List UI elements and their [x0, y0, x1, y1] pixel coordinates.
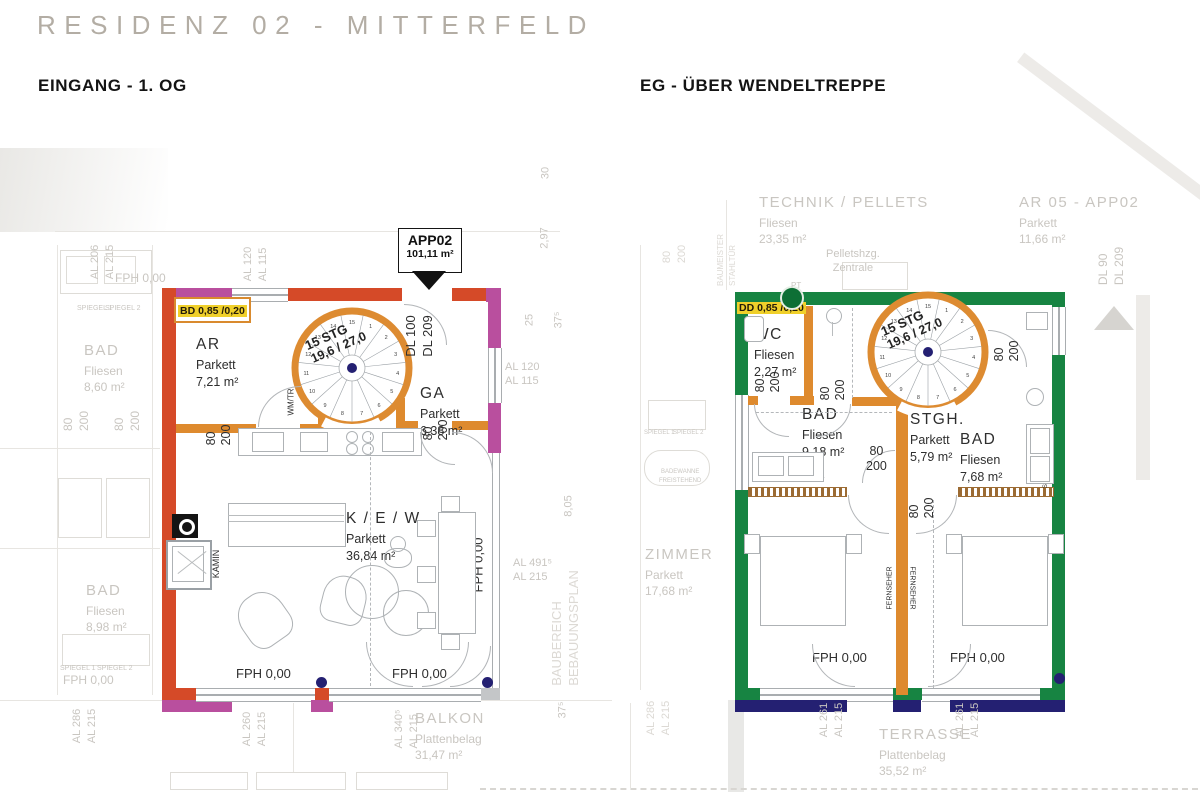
svg-text:11: 11: [879, 355, 885, 361]
glass-wall: [492, 453, 500, 688]
faded-line: [630, 703, 631, 788]
faded-annotation: BADFliesen8,98 m²: [86, 582, 127, 635]
room-name: AR: [196, 336, 238, 354]
dining-table: [438, 512, 476, 634]
column-dot: [1054, 673, 1065, 684]
faded-annotation: 8,05: [562, 495, 577, 516]
dining-chair: [441, 496, 460, 512]
faded-annotation: AL 286AL 215: [644, 701, 674, 735]
faded-annotation: SPIEGEL 1: [644, 430, 674, 436]
wall-segment: [1052, 355, 1065, 700]
sheet-title: RESIDENZ 02 - MITTERFELD: [37, 10, 595, 41]
room-floor: Parkett: [346, 531, 421, 548]
faded-roof-band: [1017, 52, 1200, 215]
room-label-stgh: STGH. Parkett 5,79 m²: [910, 411, 965, 466]
shower-head: [1026, 388, 1044, 406]
column-dot: [316, 677, 327, 688]
wall-segment: [315, 688, 329, 700]
faded-annotation: FPH 0,00: [63, 673, 114, 687]
faded-annotation: ZIMMERParkett17,68 m²: [645, 546, 713, 599]
faded-annotation: 80200: [111, 411, 143, 431]
svg-text:1: 1: [945, 308, 948, 314]
door-dimension-label: 80200: [753, 372, 783, 393]
island-line: [228, 515, 344, 516]
faded-annotation: DL 90DL 209: [1095, 247, 1127, 285]
window: [735, 395, 749, 490]
door-dimension-label: 80200: [907, 498, 937, 519]
faded-line: [152, 245, 153, 695]
faded-annotation: BAUMEISTERSTAHLTÜR: [715, 234, 739, 286]
dining-chair: [417, 566, 436, 583]
room-floor: Parkett: [910, 432, 965, 449]
heading-right-plan: EG - ÜBER WENDELTREPPE: [640, 76, 886, 96]
window: [488, 348, 502, 403]
wall-segment: [452, 288, 486, 301]
bed: [962, 536, 1048, 626]
faded-annotation: PT: [791, 281, 801, 290]
svg-text:6: 6: [377, 403, 380, 409]
svg-text:3: 3: [970, 336, 973, 342]
window: [196, 688, 315, 702]
nightstand: [1048, 534, 1064, 554]
door-arc: [404, 304, 447, 345]
wall-segment: [481, 688, 500, 700]
wall-segment: [488, 302, 501, 348]
svg-text:10: 10: [885, 373, 891, 379]
svg-text:8: 8: [341, 411, 344, 417]
room-floor: Fliesen: [754, 347, 796, 364]
dashed-boundary: [370, 432, 371, 686]
stud-wall: [958, 487, 1054, 497]
faded-annotation: BALKONPlattenbelag31,47 m²: [415, 710, 485, 763]
wall-segment: [1052, 292, 1065, 307]
faded-annotation: 80200: [660, 245, 690, 263]
bed: [760, 536, 846, 626]
door-arc: [816, 404, 851, 437]
door-dimension-label: 80200: [818, 380, 848, 401]
faded-annotation: 2,97: [538, 227, 553, 248]
door-dimension-label: 80200: [992, 341, 1022, 362]
faded-shower: [58, 478, 102, 538]
kitchen-appliance: [300, 432, 328, 452]
room-floor: Fliesen: [960, 452, 1002, 469]
faded-annotation: SPIEGEL 1: [60, 665, 96, 672]
toilet: [744, 316, 764, 342]
door-dimension-label: 80200: [866, 444, 887, 474]
svg-text:2: 2: [961, 319, 964, 325]
dining-chair: [417, 520, 436, 537]
svg-text:3: 3: [394, 352, 397, 358]
heading-left-plan: EINGANG - 1. OG: [38, 76, 187, 96]
faded-annotation: AL 491⁵AL 215: [513, 556, 552, 584]
fph-label: FPH 0,00: [236, 666, 291, 681]
faded-window: [356, 772, 448, 790]
svg-text:5: 5: [966, 373, 969, 379]
faded-annotation: SPIEGEL 2: [97, 665, 133, 672]
basin: [1030, 456, 1050, 482]
svg-text:8: 8: [917, 395, 920, 401]
nightstand: [946, 534, 962, 554]
faded-annotation: 37⁵: [556, 702, 571, 719]
faded-window: [170, 772, 248, 790]
kitchen-sink: [252, 432, 284, 452]
terrace-wall: [893, 700, 921, 712]
svg-text:10: 10: [309, 389, 315, 395]
wall-segment: [488, 403, 501, 453]
stove-burner: [362, 431, 374, 443]
room-area: 7,68 m²: [960, 469, 1002, 486]
column-dot: [482, 677, 493, 688]
radiator: [1026, 312, 1048, 330]
lintel-label-bd: BD 0,85 /0,20: [178, 305, 247, 317]
faded-annotation: AL 286AL 215: [70, 709, 100, 743]
basin: [788, 456, 814, 476]
faded-pier: [728, 700, 744, 792]
room-label-ar: AR Parkett 7,21 m²: [196, 336, 238, 391]
faded-annotation: AL 120AL 115: [505, 360, 539, 388]
interior-wall: [804, 306, 813, 398]
faded-annotation: 30: [539, 167, 554, 179]
svg-text:4: 4: [972, 355, 975, 361]
wall-segment: [162, 288, 176, 688]
faded-annotation: SPIEGEL 2: [673, 430, 703, 436]
stud-wall: [748, 487, 847, 497]
person-figure: [384, 548, 412, 568]
door-dimension-label: 80200: [421, 420, 451, 441]
faded-shower: [106, 478, 150, 538]
faded-line: [0, 548, 160, 549]
window: [329, 688, 481, 702]
faded-annotation: AL 261AL 215: [817, 703, 847, 737]
faded-annotation: BADEWANNEFREISTEHEND: [659, 468, 701, 486]
door-arc: [452, 432, 493, 473]
door-arc: [928, 644, 971, 687]
room-area: 7,21 m²: [196, 374, 238, 391]
faded-annotation: Pelletshzg.Zentrale: [826, 247, 880, 275]
faded-up-arrow-icon: [1094, 306, 1134, 330]
basin: [1030, 428, 1050, 454]
svg-text:2: 2: [385, 335, 388, 341]
faded-line: [57, 245, 58, 695]
interior-wall: [896, 402, 908, 695]
shower-stem: [832, 322, 833, 336]
basin: [758, 456, 784, 476]
kitchen-appliance: [382, 432, 414, 452]
apartment-callout: APP02 101,11 m²: [398, 228, 462, 273]
faded-line: [640, 245, 641, 690]
stove-burner: [346, 443, 358, 455]
floor-plan-sheet: RESIDENZ 02 - MITTERFELD EINGANG - 1. OG…: [0, 0, 1200, 795]
faded-annotation: AR 05 - APP02Parkett11,66 m²: [1019, 194, 1139, 247]
faded-vanity: [62, 634, 150, 666]
stove-connection-ring: [179, 519, 195, 535]
callout-arrow-icon: [412, 271, 446, 290]
faded-annotation: 25: [523, 314, 538, 326]
faded-annotation: TERRASSEPlattenbelag35,52 m²: [879, 726, 972, 779]
nightstand: [744, 534, 760, 554]
shower-head: [826, 308, 842, 324]
faded-annotation: BADFliesen8,60 m²: [84, 342, 125, 395]
armchair: [229, 583, 299, 655]
dashed-boundary: [852, 308, 853, 398]
island-line: [228, 521, 344, 522]
fernseher-label: FERNSEHER: [887, 566, 894, 609]
nightstand: [846, 534, 862, 554]
svg-text:4: 4: [396, 371, 399, 377]
apartment-id: APP02: [399, 232, 461, 248]
svg-text:1: 1: [369, 324, 372, 330]
faded-line: [0, 448, 160, 449]
faded-annotation: BAUBEREICHBEBAUUNGSPLAN: [548, 570, 582, 686]
lintel-box: BD 0,85 /0,20: [174, 297, 251, 323]
wall-segment: [162, 688, 196, 700]
svg-text:9: 9: [899, 387, 902, 393]
faded-annotation: SPIEGEL 2: [105, 305, 141, 312]
svg-text:11: 11: [303, 371, 309, 377]
door-arc: [366, 642, 413, 687]
room-area: 5,79 m²: [910, 449, 965, 466]
room-name: K / E / W: [346, 510, 421, 528]
room-name: GA: [420, 385, 462, 403]
room-floor: Parkett: [196, 357, 238, 374]
svg-text:7: 7: [936, 395, 939, 401]
room-name: BAD: [960, 431, 1002, 449]
faded-annotation: AL 260AL 215: [240, 712, 270, 746]
room-label-bad2: BAD Fliesen 7,68 m²: [960, 431, 1002, 486]
apartment-area: 101,11 m²: [399, 248, 461, 260]
interior-wall: [790, 396, 814, 405]
door-arc: [812, 644, 855, 687]
wall-segment: [1040, 688, 1065, 700]
faded-window: [256, 772, 346, 790]
room-name: STGH.: [910, 411, 965, 429]
faded-wall-band: [1136, 295, 1150, 480]
window: [1052, 307, 1066, 355]
wall-segment: [486, 288, 501, 302]
dashed-boundary: [933, 500, 934, 688]
door-arc: [754, 404, 789, 437]
faded-annotation: FPH 0,00: [115, 271, 166, 285]
svg-text:9: 9: [323, 403, 326, 409]
wall-segment: [735, 490, 748, 700]
svg-text:7: 7: [360, 411, 363, 417]
faded-fixture: [648, 400, 706, 430]
svg-text:6: 6: [953, 387, 956, 393]
stove-burner: [362, 443, 374, 455]
faded-line: [55, 231, 560, 232]
faded-annotation: TECHNIK / PELLETSFliesen23,35 m²: [759, 194, 929, 247]
stove-burner: [346, 431, 358, 443]
door-arc: [258, 386, 301, 427]
kamin-label: KAMIN: [211, 550, 221, 579]
wall-segment: [735, 688, 760, 700]
faded-annotation: 80200: [60, 411, 92, 431]
door-dimension-label: 80200: [204, 425, 234, 446]
door-arc: [848, 495, 889, 534]
svg-text:5: 5: [390, 389, 393, 395]
faded-wall-band: [0, 148, 168, 232]
kitchen-island: [228, 503, 346, 547]
dashed-boundary: [756, 412, 892, 413]
faded-annotation: AL 206AL 215: [88, 245, 118, 279]
faded-annotation: AL 120AL 115: [241, 247, 271, 281]
faded-annotation: 37⁵: [552, 312, 567, 329]
fernseher-label: FERNSEHER: [909, 566, 916, 609]
dining-chair: [417, 612, 436, 629]
faded-dashed-line: [480, 788, 1198, 790]
